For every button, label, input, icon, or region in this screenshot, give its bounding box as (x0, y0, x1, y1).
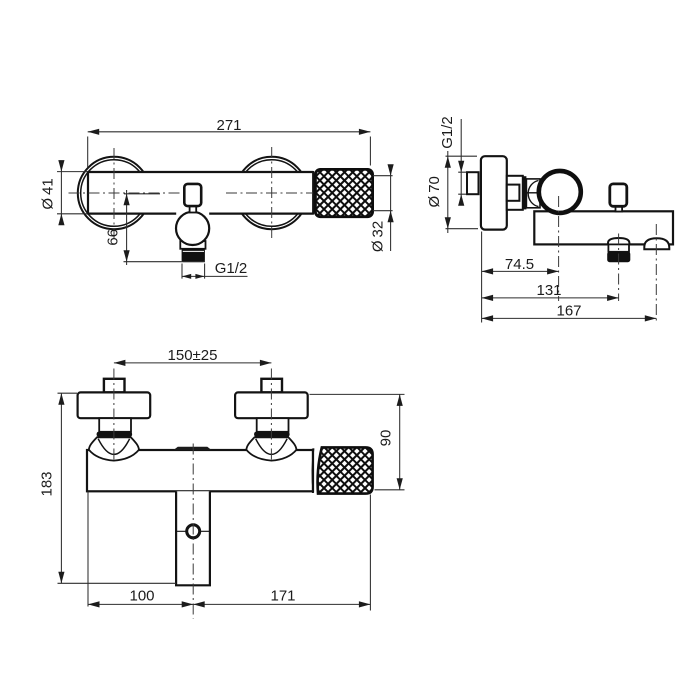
svg-text:66: 66 (105, 229, 122, 246)
svg-text:G1/2: G1/2 (215, 260, 248, 277)
svg-text:74.5: 74.5 (505, 256, 534, 273)
svg-text:171: 171 (270, 588, 295, 605)
svg-text:100: 100 (129, 588, 154, 605)
svg-text:150±25: 150±25 (168, 347, 218, 364)
svg-text:Ø 70: Ø 70 (426, 176, 443, 207)
svg-text:90: 90 (378, 430, 395, 447)
svg-text:Ø 41: Ø 41 (40, 178, 57, 209)
svg-text:183: 183 (39, 471, 56, 496)
svg-text:Ø 32: Ø 32 (370, 221, 387, 252)
svg-text:271: 271 (216, 117, 241, 134)
svg-text:131: 131 (536, 282, 561, 299)
svg-text:G1/2: G1/2 (439, 116, 456, 149)
svg-text:167: 167 (556, 303, 581, 320)
